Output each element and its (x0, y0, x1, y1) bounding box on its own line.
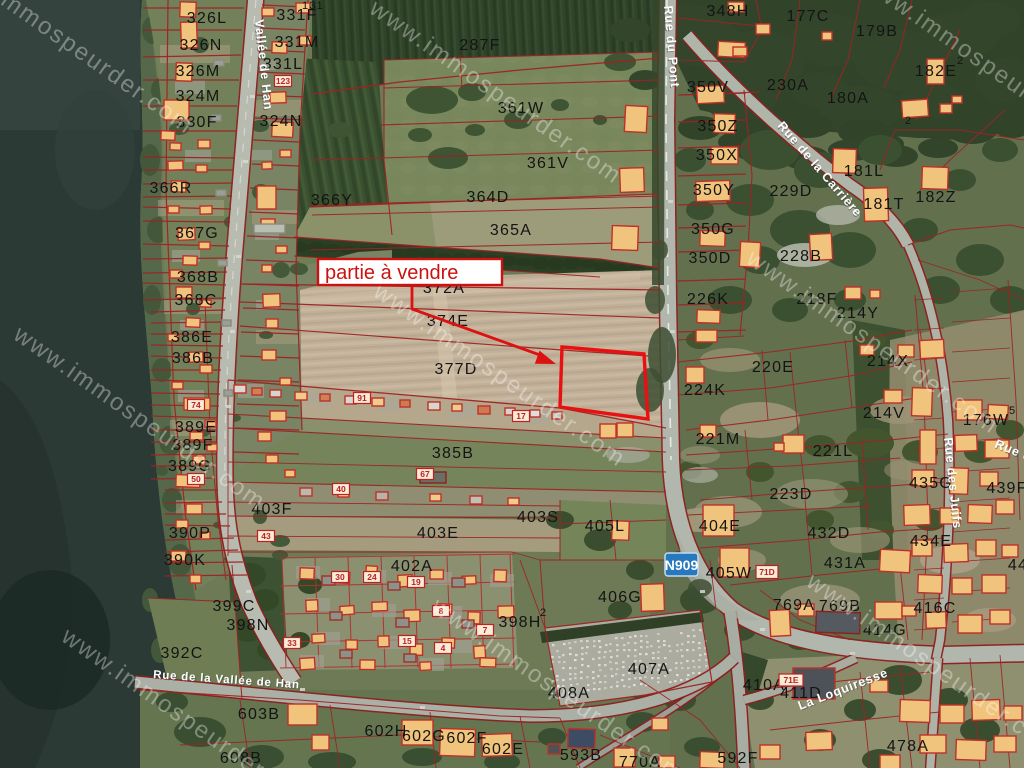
svg-text:593B: 593B (560, 747, 602, 764)
svg-text:220E: 220E (752, 359, 794, 376)
svg-text:366R: 366R (149, 180, 192, 197)
svg-text:368B: 368B (177, 269, 219, 286)
svg-text:350V: 350V (687, 79, 729, 96)
svg-text:182Z: 182Z (915, 189, 956, 206)
svg-text:350X: 350X (696, 147, 738, 164)
svg-text:177C: 177C (786, 8, 829, 25)
svg-text:74: 74 (191, 400, 201, 410)
svg-text:214V: 214V (863, 405, 905, 422)
svg-text:181L: 181L (844, 163, 884, 180)
svg-text:71E: 71E (783, 675, 798, 685)
svg-text:326M: 326M (176, 63, 221, 80)
svg-text:287F: 287F (459, 37, 500, 54)
svg-text:229D: 229D (769, 183, 812, 200)
svg-text:348H: 348H (706, 3, 749, 20)
svg-text:19: 19 (411, 577, 421, 587)
svg-text:478A: 478A (887, 738, 929, 755)
svg-text:416C: 416C (913, 600, 956, 617)
svg-text:4: 4 (441, 643, 446, 653)
svg-text:30: 30 (335, 572, 345, 582)
svg-text:404E: 404E (699, 518, 741, 535)
svg-text:405L: 405L (585, 518, 625, 535)
svg-text:180A: 180A (827, 90, 869, 107)
svg-text:361V: 361V (527, 155, 569, 172)
svg-text:223D: 223D (769, 486, 812, 503)
svg-text:398N: 398N (226, 617, 269, 634)
svg-text:431A: 431A (824, 555, 866, 572)
svg-text:399C: 399C (212, 598, 255, 615)
svg-text:24: 24 (367, 572, 377, 582)
svg-text:432D: 432D (807, 525, 850, 542)
svg-text:331M: 331M (275, 34, 320, 51)
svg-text:592F: 592F (717, 750, 758, 767)
svg-text:407A: 407A (628, 661, 670, 678)
svg-text:71D: 71D (759, 567, 775, 577)
svg-text:326N: 326N (179, 37, 222, 54)
svg-text:403E: 403E (417, 525, 459, 542)
svg-text:406G: 406G (598, 589, 642, 606)
svg-text:182E: 182E (915, 63, 957, 80)
svg-text:324N: 324N (259, 113, 302, 130)
svg-text:403S: 403S (517, 509, 559, 526)
svg-text:324M: 324M (176, 88, 221, 105)
svg-text:228B: 228B (780, 248, 822, 265)
svg-text:230A: 230A (767, 77, 809, 94)
svg-text:partie à vendre: partie à vendre (325, 262, 458, 284)
svg-text:331F: 331F (276, 7, 317, 24)
svg-text:350Z: 350Z (697, 118, 738, 135)
svg-text:434E: 434E (910, 533, 952, 550)
svg-text:603B: 603B (238, 706, 280, 723)
svg-text:392C: 392C (160, 645, 203, 662)
svg-text:67: 67 (420, 469, 430, 479)
svg-text:390K: 390K (164, 552, 206, 569)
svg-text:33: 33 (287, 638, 297, 648)
svg-text:402A: 402A (391, 558, 433, 575)
svg-text:91: 91 (357, 393, 367, 403)
svg-text:769A: 769A (773, 597, 815, 614)
svg-text:326L: 326L (187, 10, 227, 27)
svg-text:365A: 365A (490, 222, 532, 239)
svg-text:2: 2 (905, 115, 911, 127)
svg-text:221L: 221L (813, 443, 853, 460)
svg-text:44: 44 (1008, 557, 1024, 574)
svg-text:364D: 364D (466, 189, 509, 206)
svg-text:386B: 386B (172, 350, 214, 367)
svg-text:366Y: 366Y (311, 192, 353, 209)
svg-text:224K: 224K (684, 382, 726, 399)
svg-text:439F: 439F (986, 480, 1024, 497)
svg-text:350D: 350D (688, 250, 731, 267)
svg-text:15: 15 (402, 636, 412, 646)
svg-text:N909: N909 (665, 557, 699, 573)
svg-text:226K: 226K (687, 291, 729, 308)
svg-text:350G: 350G (691, 221, 735, 238)
svg-text:386E: 386E (171, 329, 213, 346)
svg-text:390P: 390P (169, 525, 211, 542)
svg-text:17: 17 (516, 411, 526, 421)
svg-text:181T: 181T (863, 196, 904, 213)
svg-text:5: 5 (1009, 405, 1015, 417)
svg-text:123: 123 (276, 76, 290, 86)
svg-text:179B: 179B (856, 23, 898, 40)
svg-text:2: 2 (540, 607, 546, 619)
svg-text:405W: 405W (706, 565, 753, 582)
svg-text:602E: 602E (482, 741, 524, 758)
svg-text:602G: 602G (402, 728, 446, 745)
svg-text:221M: 221M (696, 431, 741, 448)
svg-text:43: 43 (261, 531, 271, 541)
svg-text:368C: 368C (174, 292, 217, 309)
svg-text:398H: 398H (498, 614, 541, 631)
svg-text:350Y: 350Y (693, 182, 735, 199)
svg-text:385B: 385B (432, 445, 474, 462)
svg-text:367G: 367G (175, 225, 219, 242)
svg-text:40: 40 (336, 484, 346, 494)
